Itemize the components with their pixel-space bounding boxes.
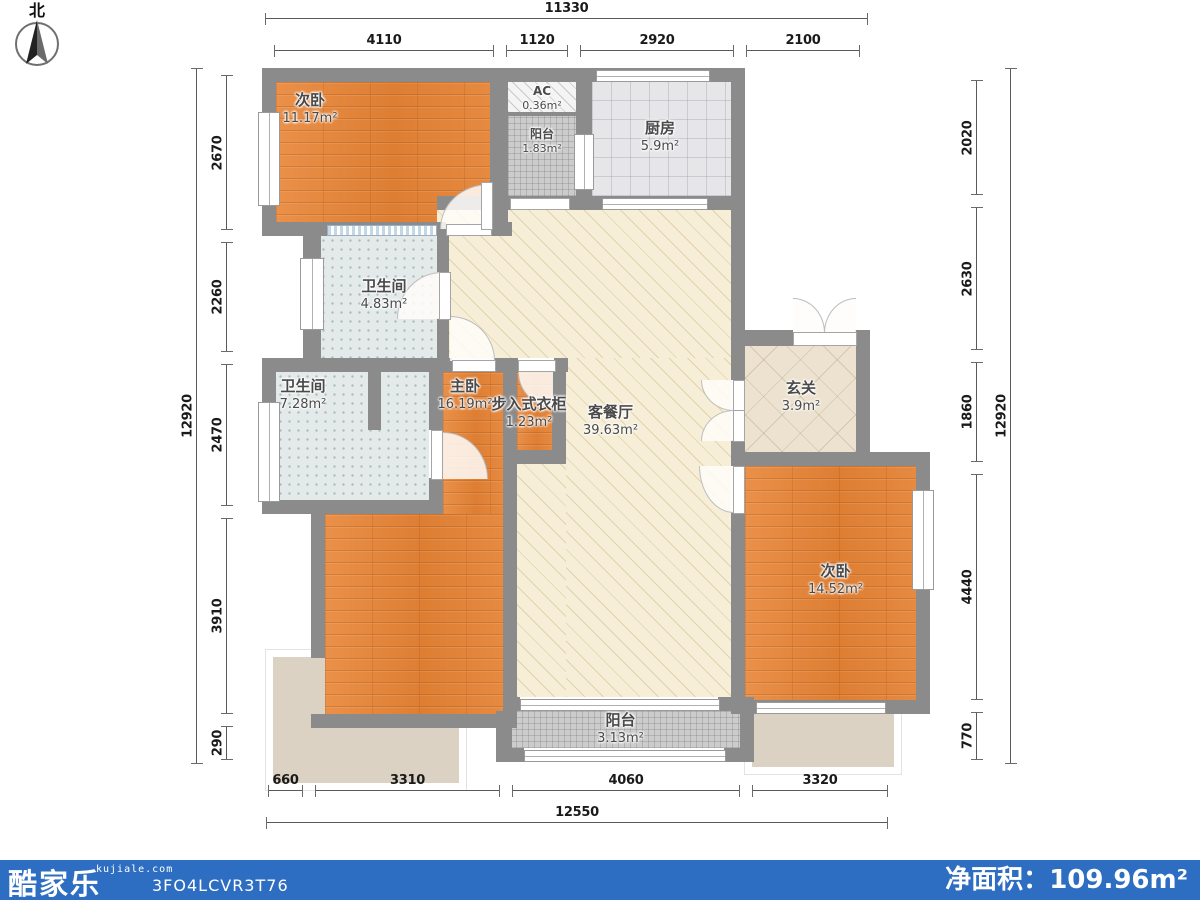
door-leaf bbox=[431, 430, 443, 480]
room-area: 11.17m² bbox=[250, 110, 370, 128]
room-area: 39.63m² bbox=[558, 422, 663, 440]
dimension-line: 2100 bbox=[746, 50, 860, 51]
dimension-value: 2100 bbox=[786, 33, 821, 48]
dimension-value: 290 bbox=[211, 730, 226, 756]
window bbox=[300, 258, 324, 330]
room-label-entry-hall: 玄关3.9m² bbox=[756, 378, 846, 418]
dimension-line: 2020 bbox=[976, 80, 977, 195]
door-leaf bbox=[510, 198, 570, 210]
room-name: 次卧 bbox=[250, 90, 370, 110]
door-swing bbox=[824, 298, 856, 333]
window bbox=[912, 490, 934, 590]
dimension-value: 2670 bbox=[211, 135, 226, 170]
dimension-value: 2260 bbox=[211, 280, 226, 315]
room-label-bathroom-1: 卫生间4.83m² bbox=[330, 276, 438, 316]
door-leaf bbox=[733, 380, 745, 412]
dimension-value: 4060 bbox=[609, 773, 644, 788]
dimension-value: 1860 bbox=[961, 395, 976, 430]
compass: 北 bbox=[10, 2, 64, 71]
room-name: 次卧 bbox=[783, 561, 888, 581]
dimension-value: 11330 bbox=[545, 1, 589, 16]
wall bbox=[262, 358, 452, 372]
wall bbox=[731, 344, 745, 380]
room-label-balcony-top: 阳台1.83m² bbox=[504, 126, 580, 166]
north-label: 北 bbox=[10, 2, 64, 19]
dimension-value: 2630 bbox=[961, 261, 976, 296]
window bbox=[524, 750, 726, 762]
wall bbox=[554, 358, 568, 372]
floor-living-dining bbox=[517, 464, 566, 697]
dimension-line: 12550 bbox=[266, 822, 888, 823]
door-leaf bbox=[733, 410, 745, 442]
room-label-living-dining: 客餐厅39.63m² bbox=[558, 402, 663, 442]
dimension-line: 1860 bbox=[976, 362, 977, 462]
door-swing bbox=[793, 298, 825, 333]
wall bbox=[731, 330, 793, 346]
wall bbox=[731, 452, 930, 466]
dimension-value: 12920 bbox=[995, 394, 1010, 438]
room-area: 0.36m² bbox=[504, 99, 580, 114]
dimension-value: 770 bbox=[961, 723, 976, 749]
high-window bbox=[327, 225, 437, 236]
room-area: 1.83m² bbox=[504, 142, 580, 157]
door-leaf bbox=[733, 466, 745, 514]
dimension-value: 3910 bbox=[211, 599, 226, 634]
door-leaf bbox=[481, 182, 493, 230]
dimension-line: 4440 bbox=[976, 474, 977, 700]
dimension-line: 3320 bbox=[752, 790, 888, 791]
dimension-line: 2260 bbox=[226, 242, 227, 352]
brand-website: kujiale.com bbox=[96, 864, 173, 875]
dimension-value: 12550 bbox=[555, 805, 599, 820]
wall bbox=[368, 372, 381, 430]
door-leaf bbox=[518, 360, 556, 372]
dimension-value: 2470 bbox=[211, 418, 226, 453]
room-area: 7.28m² bbox=[255, 396, 351, 414]
net-area-value: 109.96m² bbox=[1049, 865, 1188, 895]
dimension-value: 2020 bbox=[961, 120, 976, 155]
dimension-line: 12920 bbox=[1010, 68, 1011, 764]
dimension-value: 1120 bbox=[520, 33, 555, 48]
dimension-value: 4440 bbox=[961, 570, 976, 605]
wall bbox=[311, 514, 325, 658]
room-name: AC bbox=[504, 83, 580, 99]
door-leaf bbox=[793, 332, 857, 346]
wall bbox=[262, 500, 443, 514]
door-leaf bbox=[439, 272, 451, 320]
dimension-value: 2920 bbox=[640, 33, 675, 48]
room-label-bedroom-right: 次卧14.52m² bbox=[783, 561, 888, 601]
dimension-line: 2470 bbox=[226, 364, 227, 506]
dimension-line: 2670 bbox=[226, 75, 227, 230]
dimension-line: 3310 bbox=[315, 790, 500, 791]
floor-master-bedroom bbox=[325, 514, 503, 714]
window bbox=[596, 70, 710, 82]
room-label-bathroom-2: 卫生间7.28m² bbox=[255, 376, 351, 416]
room-name: 阳台 bbox=[504, 126, 580, 142]
dimension-value: 660 bbox=[272, 773, 298, 788]
wall bbox=[503, 450, 566, 464]
footer-bar: 酷家乐 kujiale.com 3FO4LCVR3T76 净面积：109.96m… bbox=[0, 860, 1200, 900]
room-name: 阳台 bbox=[568, 710, 673, 730]
floor-plan: 次卧11.17m²AC0.36m²阳台1.83m²厨房5.9m²卫生间4.83m… bbox=[0, 0, 1200, 860]
terrace bbox=[745, 704, 901, 774]
dimension-line: 11330 bbox=[265, 18, 868, 19]
room-label-bedroom-top-left: 次卧11.17m² bbox=[250, 90, 370, 130]
room-label-kitchen: 厨房5.9m² bbox=[610, 118, 710, 158]
room-label-ac: AC0.36m² bbox=[504, 83, 580, 123]
room-area: 3.13m² bbox=[568, 730, 673, 748]
wall bbox=[496, 711, 512, 762]
dimension-line: 770 bbox=[976, 712, 977, 760]
dimension-line: 2920 bbox=[580, 50, 734, 51]
room-area: 5.9m² bbox=[610, 138, 710, 156]
room-area: 3.9m² bbox=[756, 398, 846, 416]
dimension-value: 4110 bbox=[367, 33, 402, 48]
room-name: 卫生间 bbox=[330, 276, 438, 296]
room-name: 客餐厅 bbox=[558, 402, 663, 422]
wall bbox=[311, 714, 511, 728]
compass-needle-icon bbox=[13, 19, 61, 67]
room-name: 玄关 bbox=[756, 378, 846, 398]
wall bbox=[494, 358, 518, 372]
door-leaf bbox=[452, 360, 496, 372]
dimension-line: 660 bbox=[268, 790, 303, 791]
dimension-line: 4060 bbox=[512, 790, 740, 791]
dimension-value: 3310 bbox=[390, 773, 425, 788]
room-area: 14.52m² bbox=[783, 581, 888, 599]
net-area-label: 净面积： bbox=[945, 865, 1049, 895]
dimension-line: 290 bbox=[226, 726, 227, 760]
brand-logo: 酷家乐 bbox=[8, 861, 101, 903]
wall bbox=[731, 512, 745, 714]
window bbox=[258, 402, 280, 502]
dimension-value: 12920 bbox=[181, 394, 196, 438]
room-name: 卫生间 bbox=[255, 376, 351, 396]
wall bbox=[503, 697, 520, 711]
dimension-line: 12920 bbox=[196, 68, 197, 764]
dimension-line: 3910 bbox=[226, 518, 227, 714]
wall bbox=[856, 330, 870, 466]
dimension-line: 4110 bbox=[274, 50, 494, 51]
dimension-value: 3320 bbox=[803, 773, 838, 788]
room-label-balcony-bottom: 阳台3.13m² bbox=[568, 710, 673, 750]
plan-code: 3FO4LCVR3T76 bbox=[152, 876, 289, 895]
room-name: 厨房 bbox=[610, 118, 710, 138]
dimension-line: 2630 bbox=[976, 207, 977, 350]
window bbox=[602, 198, 708, 210]
net-area: 净面积：109.96m² bbox=[945, 860, 1188, 900]
room-area: 4.83m² bbox=[330, 296, 438, 314]
window bbox=[756, 702, 886, 714]
wall bbox=[429, 478, 443, 514]
dimension-line: 1120 bbox=[506, 50, 568, 51]
